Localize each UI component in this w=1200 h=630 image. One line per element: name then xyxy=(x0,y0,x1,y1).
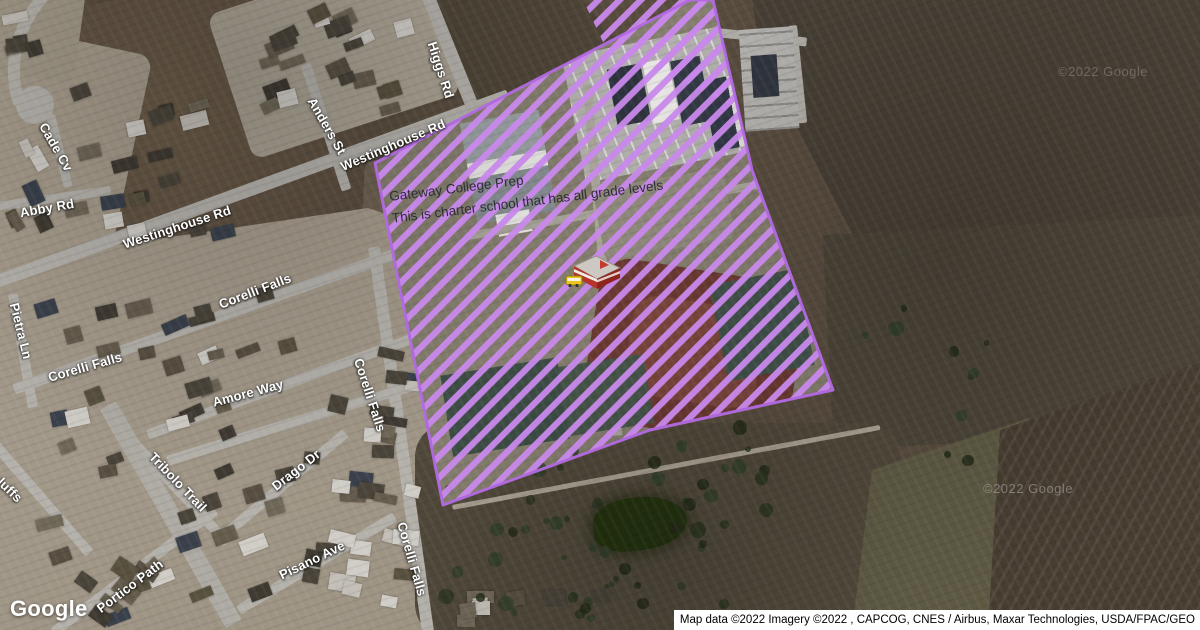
imagery-watermark-top: ©2022 Google xyxy=(1058,64,1148,79)
imagery-watermark-bottom: ©2022 Google xyxy=(983,481,1073,496)
google-logo[interactable]: Google xyxy=(10,596,88,622)
satellite-map[interactable]: Higgs Rd Anders St Westinghouse Rd Westi… xyxy=(0,0,1200,630)
school-bus-icon xyxy=(566,276,582,287)
map-attribution: Map data ©2022 Imagery ©2022 , CAPCOG, C… xyxy=(674,610,1200,630)
school-3d-building-icon[interactable] xyxy=(564,250,626,296)
parcel-overlay-layer xyxy=(0,0,1200,630)
